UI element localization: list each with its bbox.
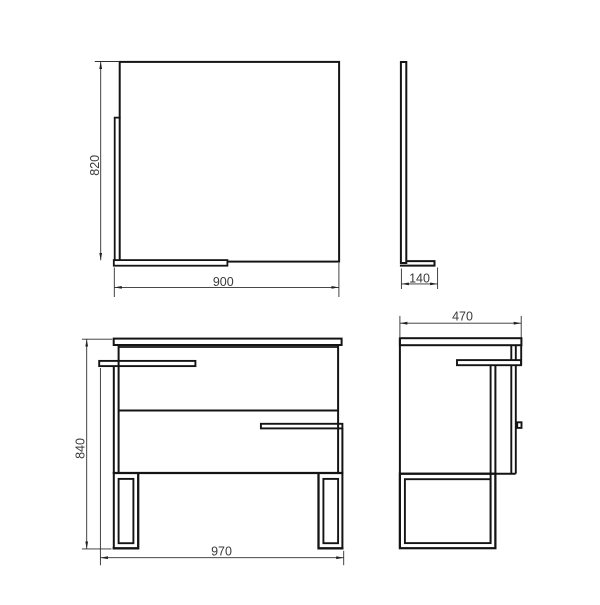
svg-text:140: 140 xyxy=(409,271,430,285)
svg-text:840: 840 xyxy=(73,438,87,459)
svg-text:970: 970 xyxy=(211,545,232,559)
svg-text:820: 820 xyxy=(88,155,102,176)
svg-text:900: 900 xyxy=(213,275,234,289)
svg-text:470: 470 xyxy=(452,310,473,324)
